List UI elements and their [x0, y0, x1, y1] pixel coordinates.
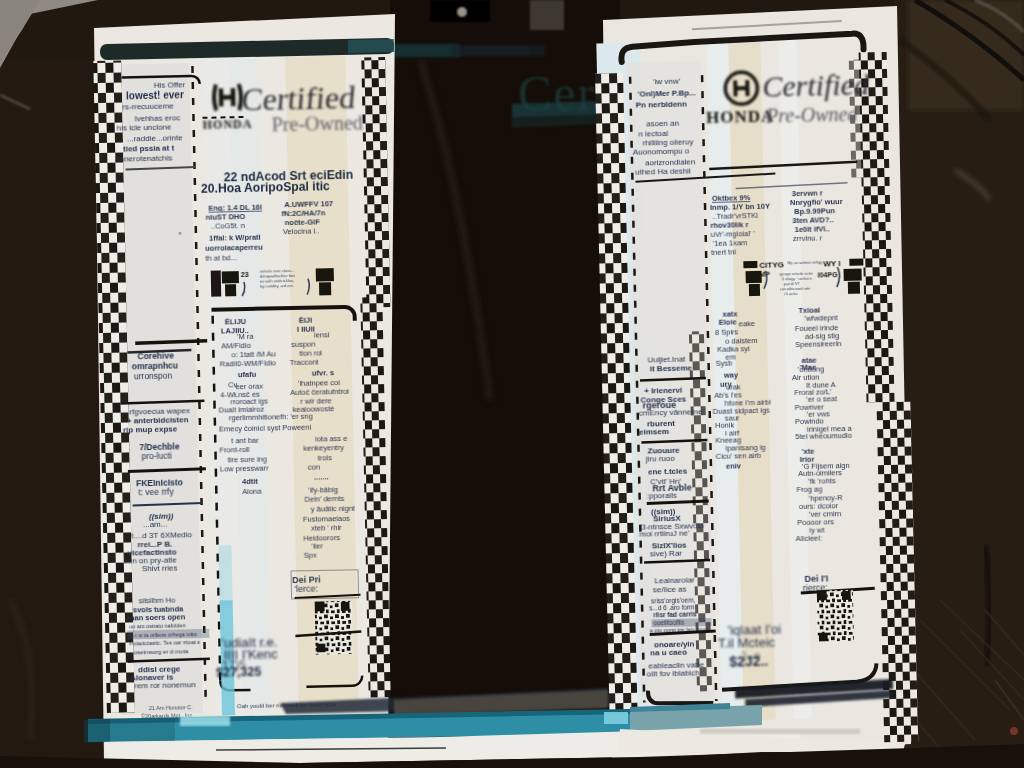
svg-text:rem ror nonemun: rem ror nonemun [134, 680, 196, 690]
svg-text:'Onl)Mer P.Bp...: 'Onl)Mer P.Bp... [637, 88, 695, 98]
svg-text:Spx: Spx [304, 551, 317, 560]
svg-text:ĒIJI: ĒIJI [299, 316, 313, 325]
svg-text:t ant bar: t ant bar [231, 436, 259, 446]
svg-text:uVr'-mgloial' ': uVr'-mgloial' ' [711, 229, 756, 239]
svg-text:Front-roll: Front-roll [219, 445, 250, 455]
svg-text:ene t.tcles: ene t.tcles [648, 467, 688, 477]
svg-text:eake: eake [739, 319, 755, 328]
svg-text:Fustomaeiaos: Fustomaeiaos [303, 514, 351, 524]
svg-text:Auonomompu o: Auonomompu o [633, 146, 690, 156]
svg-text:uo aro ostrato nafolden: uo aro ostrato nafolden [129, 622, 186, 629]
svg-text:eniv: eniv [726, 461, 742, 470]
svg-text:...am...: ...am... [143, 520, 168, 530]
svg-text:lowest! ever: lowest! ever [126, 89, 184, 101]
svg-text:AIicieel:: AIicieel: [796, 534, 822, 544]
svg-text:HONDA: HONDA [203, 117, 253, 132]
svg-text:rlisr fad carris: rlisr fad carris [653, 610, 697, 618]
svg-text:.......: ....... [314, 472, 329, 481]
svg-text:'M ra: 'M ra [237, 332, 254, 341]
svg-text:Cicu' sen airb: Cicu' sen airb [716, 451, 761, 461]
svg-text:tnert tni: tnert tni [711, 247, 737, 257]
svg-text:20.Hoa AoripoSpal itic: 20.Hoa AoripoSpal itic [201, 179, 330, 196]
svg-text:na u caeo: na u caeo [650, 648, 687, 658]
svg-text:oiIt fov iblabich: oiIt fov iblabich [647, 668, 700, 678]
svg-text:Shivt rries: Shivt rries [142, 563, 178, 573]
svg-text:cmEncy vănneme: cmEncy vănneme [639, 407, 703, 417]
svg-text:A.UWFFV 107: A.UWFFV 107 [284, 199, 333, 209]
svg-text:Ivehhas eroc: Ivehhas eroc [134, 113, 180, 123]
svg-text:pro-lucti: pro-lucti [141, 451, 172, 462]
svg-text:1ffal: k W/prati: 1ffal: k W/prati [209, 233, 261, 243]
svg-text:uorrolacaperreu: uorrolacaperreu [205, 243, 263, 253]
svg-text:CITYG: CITYG [759, 260, 784, 270]
svg-text:Velocina l..: Velocina l.. [283, 226, 319, 236]
svg-text:HONDA: HONDA [706, 106, 775, 127]
svg-text:Duast sidpact igs: Duast sidpact igs [713, 406, 771, 416]
svg-text:'lerce:: 'lerce: [294, 584, 318, 594]
svg-text:y ăuătic nignt: y ăuătic nignt [311, 504, 356, 514]
svg-text:21 Am Honotor C.: 21 Am Honotor C. [149, 704, 193, 711]
svg-text:4dtit: 4dtit [242, 477, 259, 486]
svg-text:zrrvinu. r: zrrvinu. r [793, 233, 823, 243]
svg-text:xteb ' rhir: xteb ' rhir [311, 523, 342, 533]
svg-text:Eloie: Eloie [719, 317, 737, 326]
svg-text:ooelitoofils: ooelitoofils [653, 619, 685, 627]
svg-text:rnan soers open: rnan soers open [127, 612, 186, 622]
svg-text:I04PG: I04PG [818, 271, 839, 278]
svg-text:ufafu: ufafu [238, 370, 257, 379]
svg-text:23: 23 [241, 271, 249, 278]
svg-text:r'li actio: r'li actio [784, 291, 798, 296]
svg-text:5tei wheoumudio: 5tei wheoumudio [795, 431, 852, 441]
svg-text:con: con [308, 462, 320, 471]
svg-text:it Besseme: it Besseme [650, 363, 693, 373]
svg-text:th at bd...: th at bd... [205, 253, 236, 263]
svg-text:jiru ruoo: jiru ruoo [645, 454, 676, 464]
svg-text:suspon: suspon [291, 340, 315, 350]
svg-text:'wfwdepnt: 'wfwdepnt [805, 313, 839, 323]
svg-text:uthed Ha deshii: uthed Ha deshii [635, 166, 691, 176]
svg-text:oseimsorg er d mota: oseimsorg er d mota [134, 648, 189, 655]
svg-text:his icle unclone: his icle unclone [117, 122, 172, 132]
svg-text:Pre-Owned: Pre-Owned [765, 103, 859, 127]
svg-text:Sysb: Sysb [716, 359, 733, 368]
svg-text:17)5: 17)5 [222, 658, 247, 673]
svg-text:annerotenatchis: annerotenatchis [115, 153, 172, 163]
svg-text:asoen an: asoen an [646, 119, 679, 129]
svg-text:hg combty, ard ors.: hg combty, ard ors. [260, 283, 294, 289]
svg-text:se/Iice as: se/Iice as [653, 585, 687, 595]
svg-text:t: vee rrfy: t: vee rrfy [138, 487, 174, 498]
svg-text:rs-rrecuuceme: rs-rrecuuceme [122, 101, 174, 111]
svg-text:I IIUII: I IIUII [297, 325, 315, 334]
svg-text:..CoG5t. n: ..CoG5t. n [211, 221, 245, 231]
svg-text:eimsem: eimsem [639, 427, 669, 437]
svg-text:ufvr. s: ufvr. s [312, 368, 334, 377]
svg-text:...raddie...orinte: ...raddie...orinte [127, 133, 183, 143]
svg-text:trols: trols [318, 453, 333, 462]
svg-text:sive) Rar: sive) Rar [650, 549, 683, 559]
svg-text:Certified: Certified [762, 67, 870, 102]
svg-text:'iler: 'iler [311, 541, 323, 550]
svg-text:Low presswarr: Low presswarr [220, 464, 269, 474]
svg-text:Leainarolar: Leainarolar [654, 575, 695, 585]
svg-text:Traccont: Traccont [290, 357, 320, 367]
svg-text::pporails: :pporails [647, 491, 677, 501]
svg-text:tied pssia at t: tied pssia at t [123, 143, 175, 153]
svg-text:Pn nerbldenn: Pn nerbldenn [636, 99, 687, 109]
svg-text:iensi: iensi [314, 330, 330, 339]
svg-text:tion rol: tion rol [299, 348, 322, 357]
svg-text:urronspon: urronspon [134, 371, 173, 382]
svg-text:moi rrtiiruJ ne': moi rrtiiruJ ne' [639, 529, 690, 539]
svg-text:My av avimat vehgy: My av avimat vehgy [787, 259, 822, 265]
svg-text:Dein' dernts: Dein' dernts [304, 494, 344, 504]
svg-text:Pre-Owned: Pre-Owned [271, 111, 363, 135]
svg-text:rip mup expse: rip mup expse [123, 424, 178, 434]
svg-text:'iw vnw': 'iw vnw' [653, 77, 681, 87]
svg-text:rgerlimmhitionefh: 'er sng: rgerlimmhitionefh: 'er sng [229, 412, 313, 423]
svg-text:Aiona: Aiona [242, 487, 262, 496]
svg-text:RadiI0-WM/FIdio: RadiI0-WM/FIdio [220, 358, 276, 368]
svg-text:..Tradr'vrSTKl: ..Tradr'vrSTKl [712, 211, 758, 221]
svg-text:'1ea 1xam: '1ea 1xam [713, 238, 748, 248]
svg-text:kenkeyentry: kenkeyentry [303, 443, 344, 453]
svg-text:Speensireerin: Speensireerin [795, 339, 841, 349]
svg-text:'j,-o: 'j,-o [741, 649, 761, 661]
svg-text:ĒLIJU: ĒLIJU [225, 317, 246, 326]
svg-text:1e0it ifVl..: 1e0it ifVl.. [794, 224, 829, 234]
svg-text:way: way [723, 370, 739, 379]
